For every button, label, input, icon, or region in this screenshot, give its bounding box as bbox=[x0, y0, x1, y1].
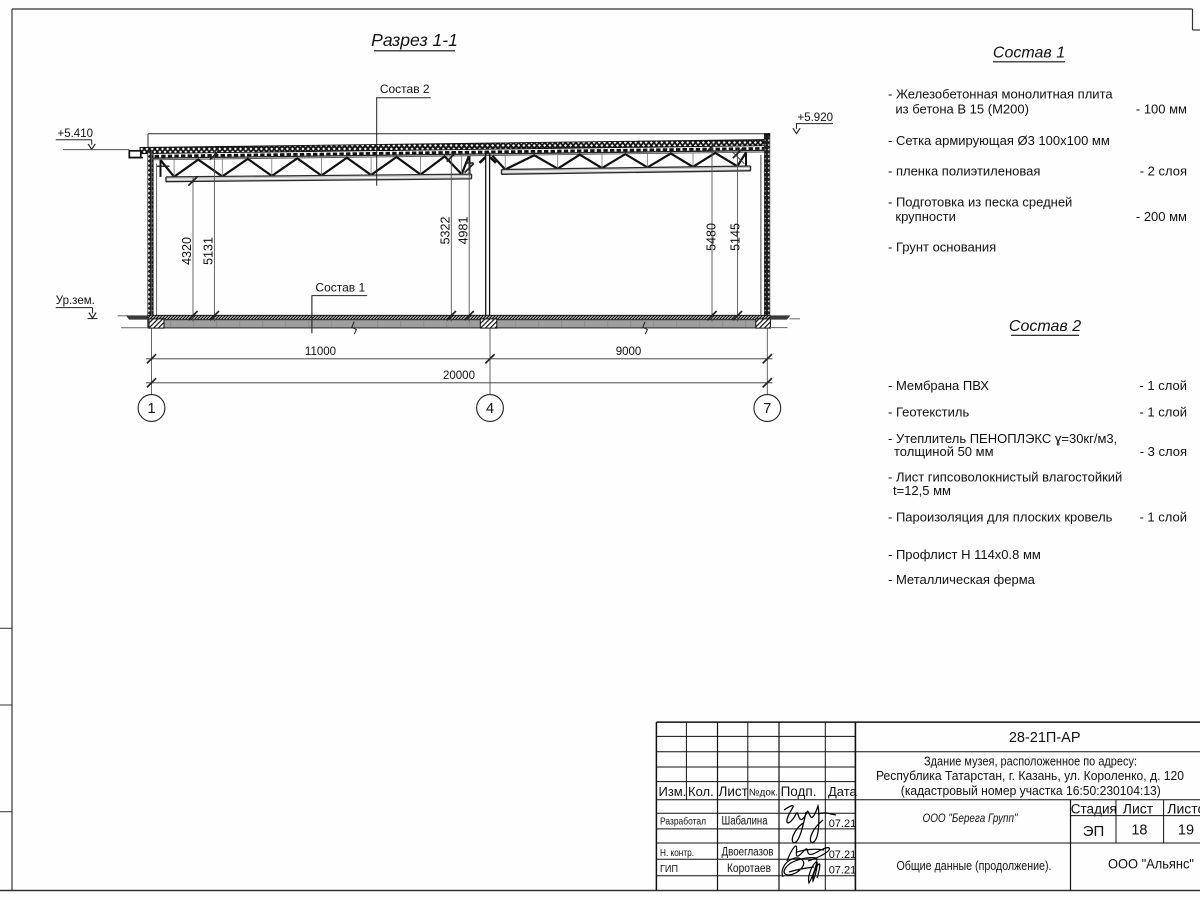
svg-text:№док.: №док. bbox=[749, 788, 778, 799]
svg-text:20000: 20000 bbox=[443, 370, 475, 382]
svg-text:4981: 4981 bbox=[456, 217, 470, 245]
svg-text:- 100 мм: - 100 мм bbox=[1136, 102, 1187, 117]
svg-text:5322: 5322 bbox=[439, 217, 453, 245]
svg-text:(кадастровый номер участка 16:: (кадастровый номер участка 16:50:230104:… bbox=[901, 783, 1161, 798]
svg-text:- Железобетонная монолитная п: - Железобетонная монолитная плита bbox=[888, 87, 1113, 102]
svg-text:t=12,5 мм: t=12,5 мм bbox=[893, 483, 951, 498]
svg-text:Состав 2: Состав 2 bbox=[380, 82, 430, 96]
svg-text:19: 19 bbox=[1178, 823, 1194, 839]
svg-text:Двоеглазов: Двоеглазов bbox=[722, 847, 774, 859]
svg-text:ООО "Альянс": ООО "Альянс" bbox=[1108, 856, 1194, 872]
svg-text:5131: 5131 bbox=[202, 237, 216, 265]
svg-text:+5.410: +5.410 bbox=[58, 128, 94, 140]
svg-text:- 2 слоя: - 2 слоя bbox=[1140, 164, 1187, 179]
svg-text:Коротаев: Коротаев bbox=[727, 863, 771, 875]
svg-text:Общие данные (продолжение).: Общие данные (продолжение). bbox=[897, 858, 1052, 873]
svg-text:ЭП: ЭП bbox=[1083, 823, 1105, 840]
svg-text:Разрез 1-1: Разрез 1-1 bbox=[371, 30, 458, 50]
svg-text:Состав 1: Состав 1 bbox=[993, 45, 1065, 62]
svg-text:- 1 слой: - 1 слой bbox=[1139, 510, 1187, 525]
svg-text:Кол.: Кол. bbox=[688, 784, 714, 799]
svg-text:Состав 2: Состав 2 bbox=[1009, 318, 1081, 335]
svg-text:Ур.зем.: Ур.зем. bbox=[56, 295, 95, 307]
svg-text:Лист: Лист bbox=[1123, 801, 1154, 817]
svg-text:Изм.: Изм. bbox=[659, 784, 687, 799]
svg-text:Республика Татарстан, г. Казан: Республика Татарстан, г. Казань, ул. Кор… bbox=[876, 768, 1184, 783]
svg-text:ООО "Берега Групп": ООО "Берега Групп" bbox=[923, 811, 1019, 825]
svg-text:4320: 4320 bbox=[180, 237, 194, 265]
svg-text:- 1 слой: - 1 слой bbox=[1139, 405, 1187, 420]
svg-text:Н. контр.: Н. контр. bbox=[660, 847, 694, 859]
svg-text:- 1 слой: - 1 слой bbox=[1139, 378, 1187, 393]
svg-text:Разработал: Разработал bbox=[660, 816, 706, 828]
svg-text:- Сетка армирующая Ø3 100х100: - Сетка армирующая Ø3 100х100 мм bbox=[888, 133, 1110, 148]
svg-text:Стадия: Стадия bbox=[1071, 802, 1117, 817]
svg-text:- Профлист Н 114х0.8 мм: - Профлист Н 114х0.8 мм bbox=[888, 547, 1041, 562]
svg-text:Состав 1: Состав 1 bbox=[315, 281, 365, 295]
svg-text:- пленка полиэтиленовая: - пленка полиэтиленовая bbox=[888, 164, 1040, 179]
svg-text:28-21П-АР: 28-21П-АР bbox=[1009, 730, 1081, 746]
svg-text:11000: 11000 bbox=[305, 346, 336, 358]
svg-text:07.21: 07.21 bbox=[829, 849, 857, 861]
svg-text:ГИП: ГИП bbox=[660, 863, 678, 875]
svg-text:- Пароизоляция для плоских кро: - Пароизоляция для плоских кровель bbox=[888, 510, 1113, 525]
svg-text:- Мембрана ПВХ: - Мембрана ПВХ bbox=[888, 378, 989, 393]
svg-text:9000: 9000 bbox=[616, 346, 642, 358]
svg-text:- Геотекстиль: - Геотекстиль bbox=[888, 405, 969, 420]
svg-text:07.21: 07.21 bbox=[829, 818, 857, 830]
svg-text:Здание музея, расположенное по: Здание музея, расположенное по адресу: bbox=[924, 754, 1137, 769]
svg-text:+5.920: +5.920 bbox=[798, 112, 834, 124]
svg-text:5145: 5145 bbox=[729, 223, 743, 251]
svg-text:из бетона В 15 (М200): из бетона В 15 (М200) bbox=[895, 102, 1029, 117]
svg-text:4: 4 bbox=[486, 401, 494, 417]
svg-text:крупности: крупности bbox=[895, 209, 955, 224]
svg-text:5480: 5480 bbox=[704, 223, 718, 251]
svg-text:толщиной 50 мм: толщиной 50 мм bbox=[894, 444, 994, 459]
svg-text:- Подготовка из песка средней: - Подготовка из песка средней bbox=[888, 195, 1072, 210]
svg-text:Листов: Листов bbox=[1167, 801, 1200, 817]
svg-text:- Грунт основания: - Грунт основания bbox=[888, 240, 996, 255]
svg-text:Лист: Лист bbox=[719, 784, 748, 799]
svg-text:1: 1 bbox=[147, 401, 155, 417]
svg-text:- 200 мм: - 200 мм bbox=[1136, 209, 1187, 224]
svg-text:Шабалина: Шабалина bbox=[722, 816, 768, 828]
svg-text:18: 18 bbox=[1131, 823, 1147, 839]
svg-text:7: 7 bbox=[763, 401, 771, 417]
svg-text:Подп.: Подп. bbox=[781, 784, 817, 799]
svg-text:- 3 слоя: - 3 слоя bbox=[1140, 444, 1187, 459]
svg-text:- Металлическая ферма: - Металлическая ферма bbox=[888, 572, 1036, 587]
svg-text:07.21: 07.21 bbox=[829, 865, 857, 877]
svg-text:Дата: Дата bbox=[828, 784, 858, 799]
